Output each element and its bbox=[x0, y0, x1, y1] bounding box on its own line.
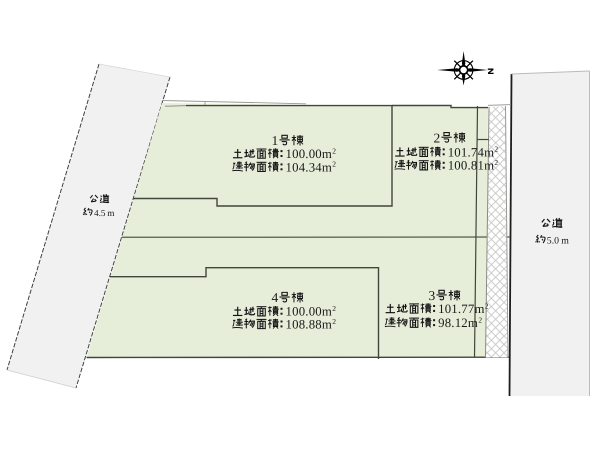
svg-text:2: 2 bbox=[434, 130, 441, 145]
svg-text:2: 2 bbox=[332, 160, 336, 169]
svg-text:98.12m: 98.12m bbox=[438, 316, 478, 330]
svg-text:2: 2 bbox=[332, 317, 336, 326]
svg-text:2: 2 bbox=[478, 316, 482, 325]
svg-text:100.00m: 100.00m bbox=[286, 147, 333, 161]
svg-text:5.0: 5.0 bbox=[547, 235, 559, 246]
svg-text:2: 2 bbox=[332, 304, 336, 313]
svg-text:2: 2 bbox=[494, 145, 498, 154]
svg-text:m: m bbox=[107, 208, 114, 218]
svg-text:104.34m: 104.34m bbox=[286, 160, 333, 174]
svg-text:1: 1 bbox=[272, 133, 279, 148]
svg-text:4: 4 bbox=[272, 290, 279, 305]
svg-text:4.5: 4.5 bbox=[94, 208, 106, 218]
svg-text:101.77m: 101.77m bbox=[438, 302, 485, 316]
svg-text:2: 2 bbox=[494, 158, 498, 167]
svg-text:101.74m: 101.74m bbox=[448, 145, 495, 159]
svg-text:m: m bbox=[561, 235, 569, 246]
svg-text:3: 3 bbox=[429, 288, 436, 303]
svg-text:100.81m: 100.81m bbox=[448, 159, 495, 173]
svg-text:2: 2 bbox=[485, 301, 489, 310]
svg-text:108.88m: 108.88m bbox=[286, 317, 333, 331]
svg-text:2: 2 bbox=[332, 146, 336, 155]
